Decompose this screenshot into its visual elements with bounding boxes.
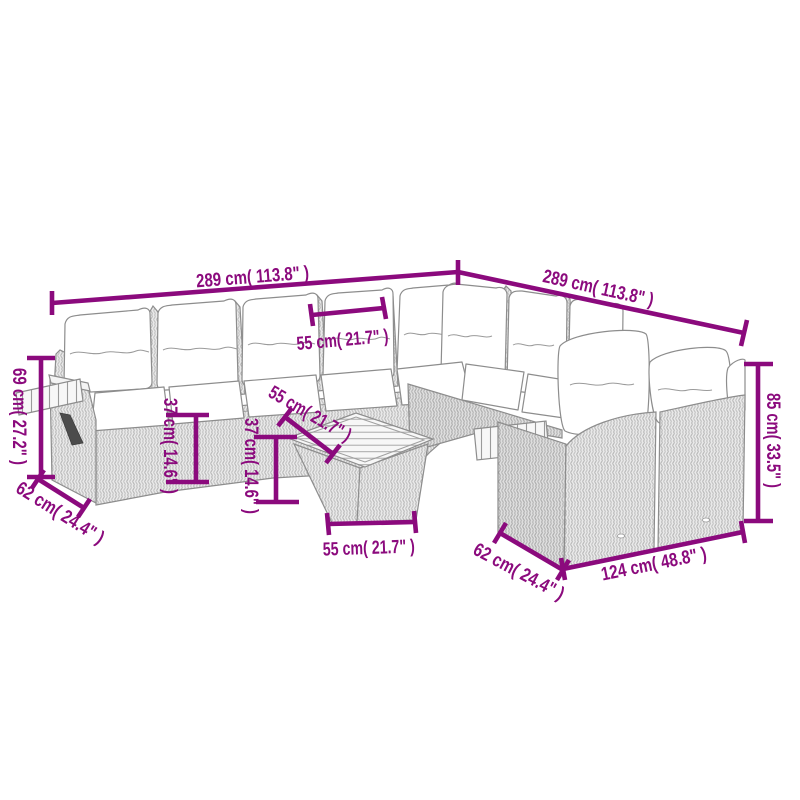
right-section-body (498, 395, 745, 570)
dim-armrest-height-label: 69 cm( 27.2" ) (8, 368, 29, 465)
dim-armrest-height: 69 cm( 27.2" ) (8, 358, 55, 477)
rivet-hole (618, 534, 625, 538)
dim-seat-height-label: 37 cm( 14.6" ) (159, 398, 180, 494)
dim-overall-width-left-label: 289 cm( 113.8" ) (195, 263, 309, 293)
dim-table-height-label: 37 cm( 14.6" ) (240, 418, 261, 514)
rivet-hole (703, 518, 710, 522)
dim-backrest-height-label: 85 cm( 33.5" ) (762, 393, 783, 488)
dim-table-width-label: 55 cm( 21.7" ) (322, 536, 415, 560)
product-dimension-diagram: 289 cm( 113.8" ) 289 cm( 113.8" ) 55 cm(… (0, 0, 800, 800)
diagram-canvas: 289 cm( 113.8" ) 289 cm( 113.8" ) 55 cm(… (0, 0, 800, 800)
dim-backrest-height: 85 cm( 33.5" ) (744, 364, 783, 521)
